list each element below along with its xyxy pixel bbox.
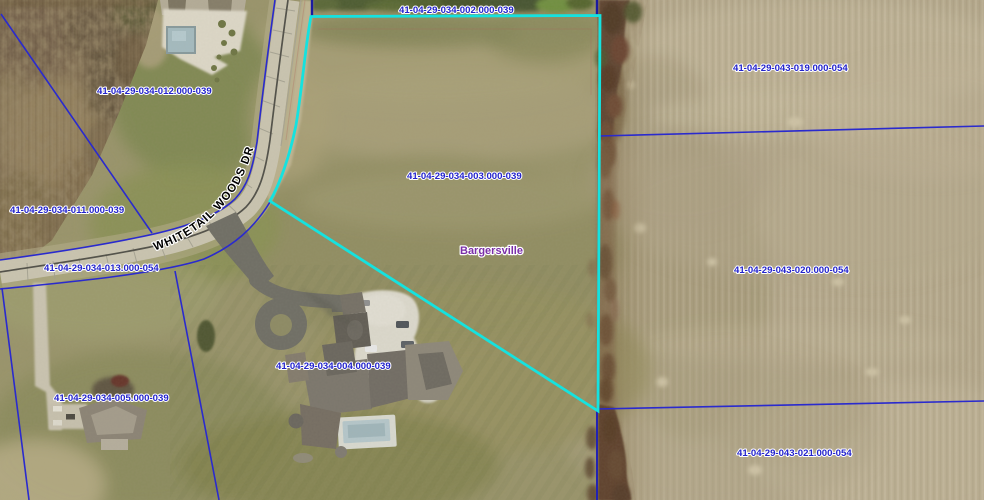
svg-text:41-04-29-034-005.000-039: 41-04-29-034-005.000-039 [54,393,169,404]
svg-text:41-04-29-034-011.000-039: 41-04-29-034-011.000-039 [10,205,124,216]
svg-text:Bargersville: Bargersville [460,245,523,257]
svg-text:41-04-29-034-002.000-039: 41-04-29-034-002.000-039 [399,5,514,16]
svg-text:41-04-29-043-020.000-054: 41-04-29-043-020.000-054 [734,265,849,276]
svg-text:41-04-29-043-021.000-054: 41-04-29-043-021.000-054 [737,448,852,459]
svg-text:41-04-29-034-003.000-039: 41-04-29-034-003.000-039 [407,171,522,182]
svg-text:41-04-29-034-004.000-039: 41-04-29-034-004.000-039 [276,361,391,372]
svg-text:41-04-29-034-012.000-039: 41-04-29-034-012.000-039 [97,86,212,97]
svg-text:41-04-29-043-019.000-054: 41-04-29-043-019.000-054 [733,63,848,74]
svg-text:41-04-29-034-013.000-054: 41-04-29-034-013.000-054 [44,263,159,274]
